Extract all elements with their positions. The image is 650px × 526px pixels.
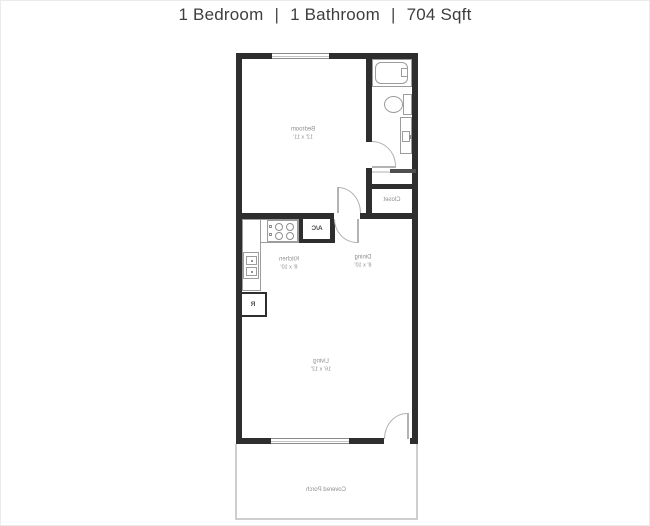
title-separator: | [274, 5, 279, 24]
toilet-tank [403, 94, 412, 115]
plan-title: 1 Bedroom|1 Bathroom|704 Sqft [1, 5, 649, 25]
stove-burner [286, 232, 294, 240]
kitchen-sink [243, 252, 259, 279]
room-name: Covered Porch [306, 487, 346, 495]
room-label-bedroom: Bedroom 12' x 11' [291, 127, 315, 142]
room-dims: 8' x 10' [354, 262, 371, 269]
sink-basin [246, 267, 257, 276]
bathtub [372, 59, 412, 87]
room-label-porch: Covered Porch [306, 487, 346, 495]
window-glass-line [271, 441, 349, 442]
sink-drain [251, 260, 253, 262]
entry-door-leaf [407, 413, 409, 439]
room-name: Kitchen [279, 257, 299, 265]
toilet-bowl [384, 96, 403, 113]
vanity-faucet [409, 135, 412, 139]
bedroom-door-swing-arc [338, 187, 361, 213]
bathroom-vanity [400, 117, 412, 154]
wall-ac-bottom [298, 239, 335, 243]
stove [267, 220, 298, 242]
bathroom-door-swing-arc [372, 141, 396, 166]
room-name: Closet [383, 197, 400, 205]
closet-rod [390, 169, 416, 173]
refrigerator-label: R [251, 301, 256, 309]
wall-bath-divider-lower [366, 168, 372, 219]
bathroom-door-leaf [372, 166, 396, 168]
room-label-dining: Dining 8' x 10' [354, 255, 371, 270]
room-label-closet: Closet [383, 197, 400, 205]
stove-burner [275, 223, 283, 231]
sink-drain [251, 271, 253, 273]
room-dims: 12' x 11' [291, 134, 315, 141]
room-name: Dining [354, 255, 371, 263]
plan-title-bedrooms: 1 Bedroom [178, 5, 263, 24]
window-glass-line [272, 56, 329, 57]
stove-knob [269, 233, 272, 236]
wall-closet-divider [366, 184, 418, 189]
ac-door-leaf [357, 219, 359, 243]
room-label-kitchen: Kitchen 8' x 10' [279, 257, 299, 272]
window-bedroom [272, 53, 329, 59]
title-separator: | [391, 5, 396, 24]
porch-outline [235, 444, 418, 520]
room-label-living: Living 16' x 12' [311, 359, 331, 374]
stove-burner [286, 223, 294, 231]
floorplan-page: 1 Bedroom|1 Bathroom|704 Sqft R [0, 0, 650, 526]
plan-title-bathrooms: 1 Bathroom [290, 5, 380, 24]
wall-right [412, 53, 418, 444]
room-dims: 8' x 10' [279, 264, 299, 271]
plan-title-sqft: 704 Sqft [407, 5, 472, 24]
ac-closet-label: A/C [311, 225, 322, 233]
room-name: Bedroom [291, 127, 315, 135]
ac-door-swing-arc [334, 219, 357, 243]
entry-door-swing-arc [384, 413, 407, 439]
sink-basin [246, 256, 257, 265]
stove-knob [269, 225, 272, 228]
bathtub-faucet [401, 68, 408, 77]
room-name: Living [311, 359, 331, 367]
room-dims: 16' x 12' [311, 366, 331, 373]
stove-burner [275, 232, 283, 240]
